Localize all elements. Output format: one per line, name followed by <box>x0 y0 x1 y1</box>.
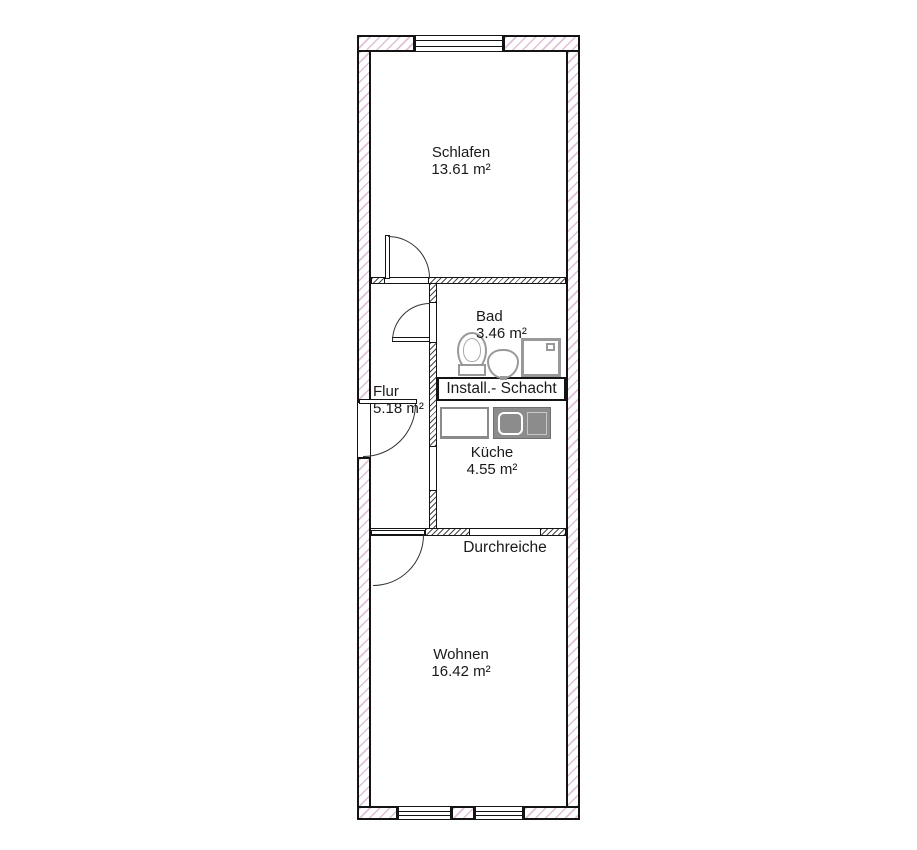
kitchen-sink-drainer <box>527 412 547 435</box>
room-label-bad: Bad 3.46 m² <box>476 308 556 342</box>
room-name: Schlafen <box>401 144 521 161</box>
room-label-kueche: Küche 4.55 m² <box>432 444 552 478</box>
wall-bottom-right <box>523 806 580 820</box>
wall-left-upper <box>357 50 371 403</box>
room-name: Küche <box>432 444 552 461</box>
bad-door-swing-arc <box>392 303 430 341</box>
window-bottom-right <box>475 806 523 820</box>
window-pane-line <box>416 46 502 47</box>
window-bottom-left <box>398 806 451 820</box>
install-schacht-label: Install.- Schacht <box>446 380 556 398</box>
floor-plan-canvas: Install.- Schacht Schlafen 13.61 m² Bad … <box>0 0 917 850</box>
window-top <box>415 35 503 52</box>
window-pane-line <box>476 815 522 816</box>
wall-bottom-middle <box>451 806 475 820</box>
wall-flur-kueche-lower <box>429 490 437 530</box>
install-schacht-box: Install.- Schacht <box>437 377 566 401</box>
window-pane-line <box>416 40 502 41</box>
wall-bottom-left <box>357 806 398 820</box>
shower-drain <box>546 343 555 351</box>
window-pane-line <box>399 811 450 812</box>
schlafen-door-threshold <box>385 277 428 284</box>
wall-left-lower <box>357 457 371 808</box>
room-area: 16.42 m² <box>401 663 521 680</box>
schlafen-door-swing-arc <box>388 236 430 278</box>
toilet-tank <box>458 364 486 376</box>
wall-wohnen-north-right <box>540 528 566 536</box>
room-name: Wohnen <box>401 646 521 663</box>
shower-fixture <box>521 338 561 377</box>
durchreiche-opening <box>470 528 540 536</box>
wall-wohnen-north-left <box>425 528 470 536</box>
wall-flur-bad-upper <box>429 283 437 303</box>
bathroom-sink-tap <box>500 376 507 380</box>
window-pane-line <box>476 811 522 812</box>
room-area: 5.18 m² <box>373 400 433 417</box>
wall-right <box>566 50 580 808</box>
room-area: 3.46 m² <box>476 325 556 342</box>
wall-schlafen-south-right <box>428 277 566 284</box>
room-name: Flur <box>373 383 433 400</box>
kitchen-sink-basin <box>498 412 523 435</box>
room-area: 4.55 m² <box>432 461 552 478</box>
bad-door-threshold <box>429 303 437 342</box>
room-label-schlafen: Schlafen 13.61 m² <box>401 144 521 178</box>
wall-schlafen-south-left <box>371 277 385 284</box>
wohnen-door-swing-arc <box>373 535 424 586</box>
window-pane-line <box>399 815 450 816</box>
bathroom-sink-fixture <box>487 349 519 379</box>
durchreiche-label: Durchreiche <box>445 539 565 557</box>
room-label-flur: Flur 5.18 m² <box>373 383 433 417</box>
stove-fixture <box>440 407 489 439</box>
room-name: Bad <box>476 308 556 325</box>
kitchen-sink-fixture <box>493 407 551 439</box>
room-area: 13.61 m² <box>401 161 521 178</box>
room-label-wohnen: Wohnen 16.42 m² <box>401 646 521 680</box>
